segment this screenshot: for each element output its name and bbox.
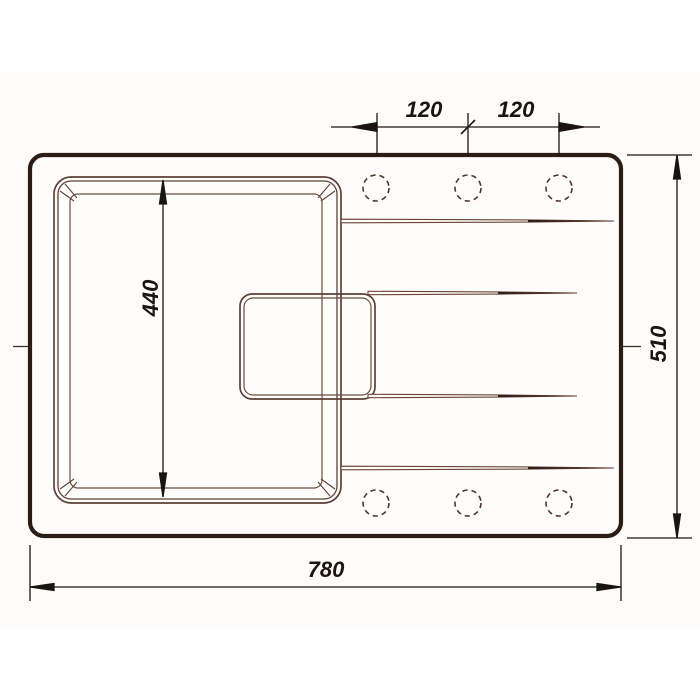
sink-outer-body bbox=[30, 155, 621, 536]
dimension-label-440: 440 bbox=[138, 279, 163, 317]
dimension-label-510: 510 bbox=[646, 325, 671, 362]
dimension-label-120-right: 120 bbox=[498, 97, 535, 122]
dimension-label-120-left: 120 bbox=[406, 97, 443, 122]
sink-technical-drawing: 120 120 440 510 780 bbox=[0, 0, 700, 700]
drawing-canvas: 120 120 440 510 780 bbox=[0, 0, 700, 700]
dimension-label-780: 780 bbox=[308, 557, 345, 582]
